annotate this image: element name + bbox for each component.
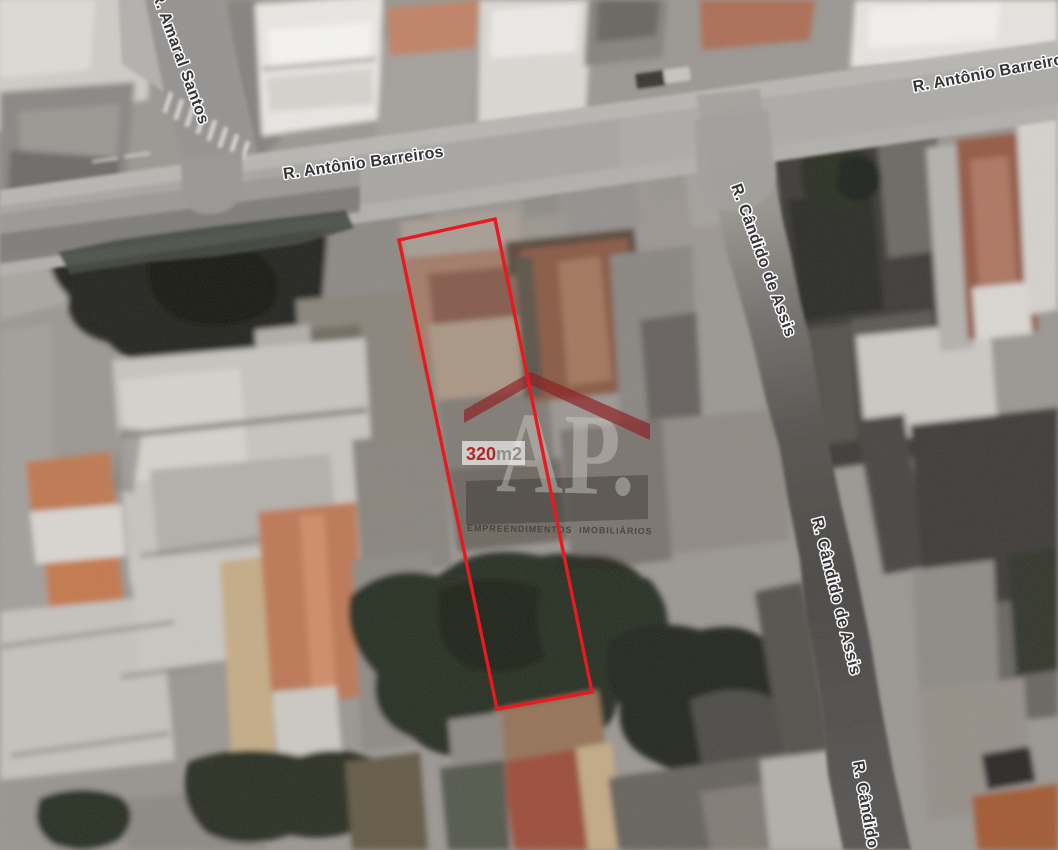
svg-text:320m2: 320m2 bbox=[466, 444, 522, 464]
